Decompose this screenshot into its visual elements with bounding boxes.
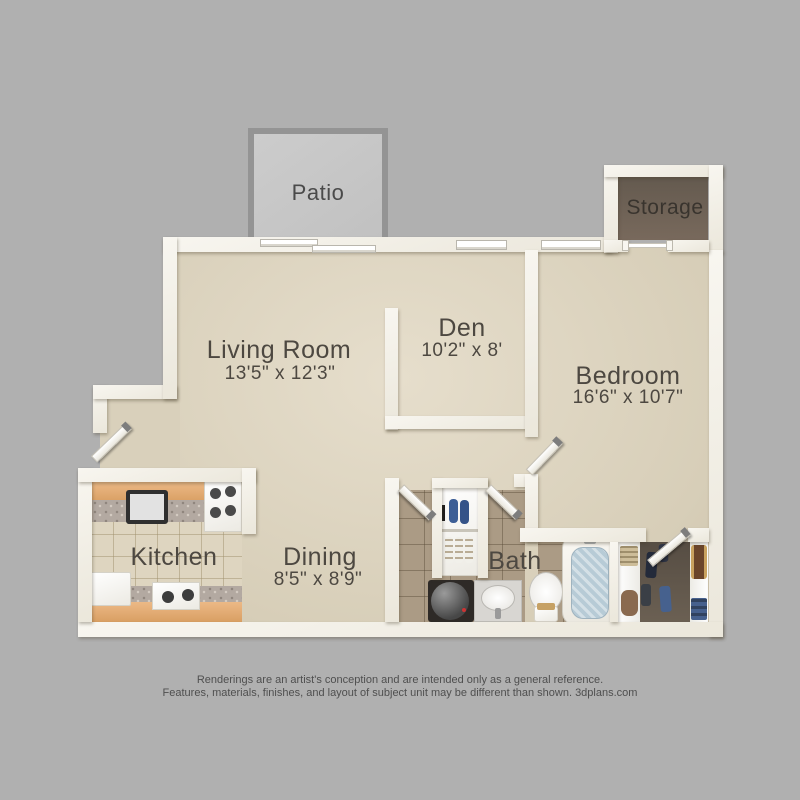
storage-door (626, 243, 670, 248)
range (152, 582, 200, 610)
washer-light (462, 608, 466, 612)
toilet-seat-trim (537, 603, 555, 610)
burner-icon (210, 488, 221, 499)
washer (428, 580, 474, 622)
window (541, 240, 601, 250)
burner-icon (225, 486, 236, 497)
wall (668, 240, 709, 252)
wall (688, 528, 709, 542)
wall (709, 165, 723, 253)
wall (604, 165, 723, 177)
wall (385, 308, 398, 430)
kitchen-sink (126, 490, 168, 524)
storage-label: Storage (626, 196, 703, 220)
patio-sliding-door (312, 245, 376, 253)
refrigerator (87, 572, 131, 606)
bathroom-vanity (474, 580, 522, 622)
bath-label: Bath (488, 547, 541, 576)
wall (525, 250, 538, 437)
wall (78, 468, 92, 622)
kitchen-label: Kitchen (131, 543, 218, 572)
wall (78, 468, 256, 482)
faucet-icon (495, 608, 501, 619)
door-hinge-icon (622, 240, 629, 251)
den-label: Den (438, 314, 485, 343)
storage-box (691, 598, 707, 620)
dining-dims: 8'5" x 8'9" (274, 569, 363, 591)
wall (610, 542, 618, 622)
hanging-clothes (641, 584, 651, 606)
dining-label: Dining (283, 543, 357, 572)
towel-roll (455, 537, 463, 563)
bathtub (562, 534, 616, 626)
stove-cooktop (204, 480, 242, 532)
bedroom-dims: 16'6" x 10'7" (573, 387, 684, 409)
wall (520, 528, 646, 542)
window (456, 240, 507, 250)
disclaimer-line-1: Renderings are an artist's conception an… (0, 674, 800, 687)
wall (163, 237, 177, 399)
door-hinge-icon (666, 240, 673, 251)
disclaimer-line-2: Features, materials, finishes, and layou… (0, 687, 800, 700)
patio-label: Patio (292, 180, 345, 206)
wall (78, 622, 723, 637)
wall (242, 468, 256, 534)
basket (620, 546, 638, 566)
towel-roll (465, 537, 473, 563)
wall (385, 478, 399, 622)
wall (432, 478, 442, 578)
wall (709, 250, 723, 637)
burner-icon (162, 591, 174, 603)
wall (385, 416, 535, 429)
living-room-label: Living Room (207, 336, 351, 365)
hanging-clothes (659, 586, 672, 613)
patio-sliding-door (260, 239, 318, 247)
floor-plan: Patio (0, 0, 800, 800)
slipper (449, 499, 458, 523)
burner-icon (225, 505, 236, 516)
towel-roll (445, 537, 453, 563)
slipper (460, 500, 469, 524)
suitcase (691, 545, 707, 579)
bathtub-basin (571, 547, 609, 619)
blanket-roll (621, 590, 638, 616)
washer-drum (431, 582, 469, 620)
living-room-dims: 13'5" x 12'3" (225, 363, 336, 385)
wall (432, 478, 488, 488)
burner-icon (182, 589, 194, 601)
burner-icon (210, 507, 221, 518)
den-dims: 10'2" x 8' (421, 340, 502, 362)
disclaimer: Renderings are an artist's conception an… (0, 674, 800, 700)
